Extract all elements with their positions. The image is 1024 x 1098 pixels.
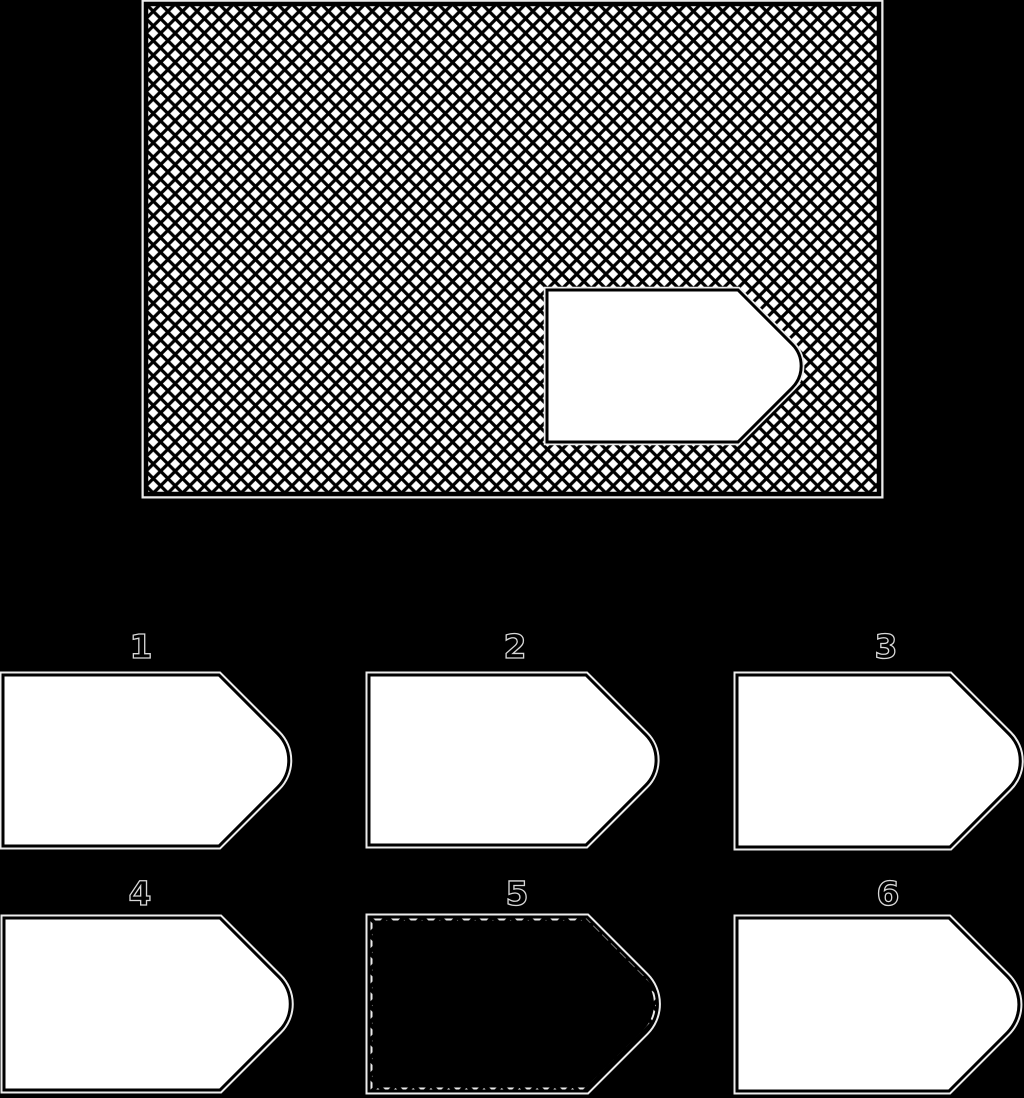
option-4-label: 4 [129,874,152,913]
pattern-panel [146,4,879,494]
panel-hatch [146,4,879,494]
option-6-label: 6 [877,874,900,913]
puzzle-figure: 123456 [0,0,1024,1098]
option-3-label: 3 [875,627,898,666]
option-2-label: 2 [504,627,527,666]
puzzle-image: 123456 [0,0,1024,1098]
option-1-label: 1 [130,627,153,666]
option-5-label: 5 [506,874,529,913]
